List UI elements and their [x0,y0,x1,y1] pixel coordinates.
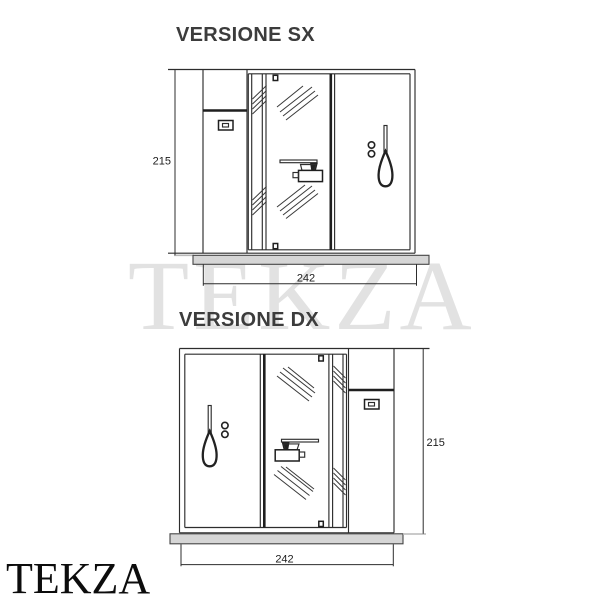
dx-width-dimension: 242 [181,544,393,566]
sx-cabin-frame [168,70,415,254]
dx-glass-frame [185,354,347,527]
sx-steam-dispenser-icon [280,160,323,182]
dx-door-hinge-bottom [319,521,324,526]
dx-height-dim-label: 215 [427,437,445,449]
versione-sx-title: VERSIONE SX [176,25,315,45]
dx-hand-shower-icon [203,406,217,467]
dx-shower-tray [170,534,403,544]
dx-tech-column [349,390,395,409]
drawing-versione-sx: 215 242 [153,70,429,286]
sx-door-hinge-bottom [273,244,278,249]
dx-width-dim-label: 242 [275,553,293,565]
versione-dx-title: VERSIONE DX [179,310,319,330]
sx-control-display [223,124,229,128]
technical-drawings-canvas: 215 242 [0,0,600,600]
dx-control-display [369,403,375,407]
sx-height-dimension: 215 [153,70,175,256]
sx-width-dimension: 242 [203,264,416,286]
sx-door-hinge-top [273,75,278,80]
sx-hand-shower-icon [379,126,393,187]
dx-cabin-frame [180,349,430,533]
sx-control-panel [219,121,234,131]
sx-tech-column [203,111,247,131]
sx-width-dim-label: 242 [297,273,315,285]
dx-door-hinge-top [319,356,324,361]
dx-control-panel [365,400,380,410]
drawing-versione-dx: 215 242 [170,349,445,567]
dx-glass-hatch-marks [274,366,346,500]
dx-height-dimension: 215 [423,349,445,534]
sx-shower-tray [193,255,429,264]
dx-mixer-knobs [222,422,228,437]
tekza-logo: TEKZA [6,557,150,601]
dx-steam-dispenser-icon [275,439,318,461]
sx-height-dim-label: 215 [153,156,171,168]
sx-mixer-knobs [368,142,374,157]
sx-glass-frame [248,74,410,250]
